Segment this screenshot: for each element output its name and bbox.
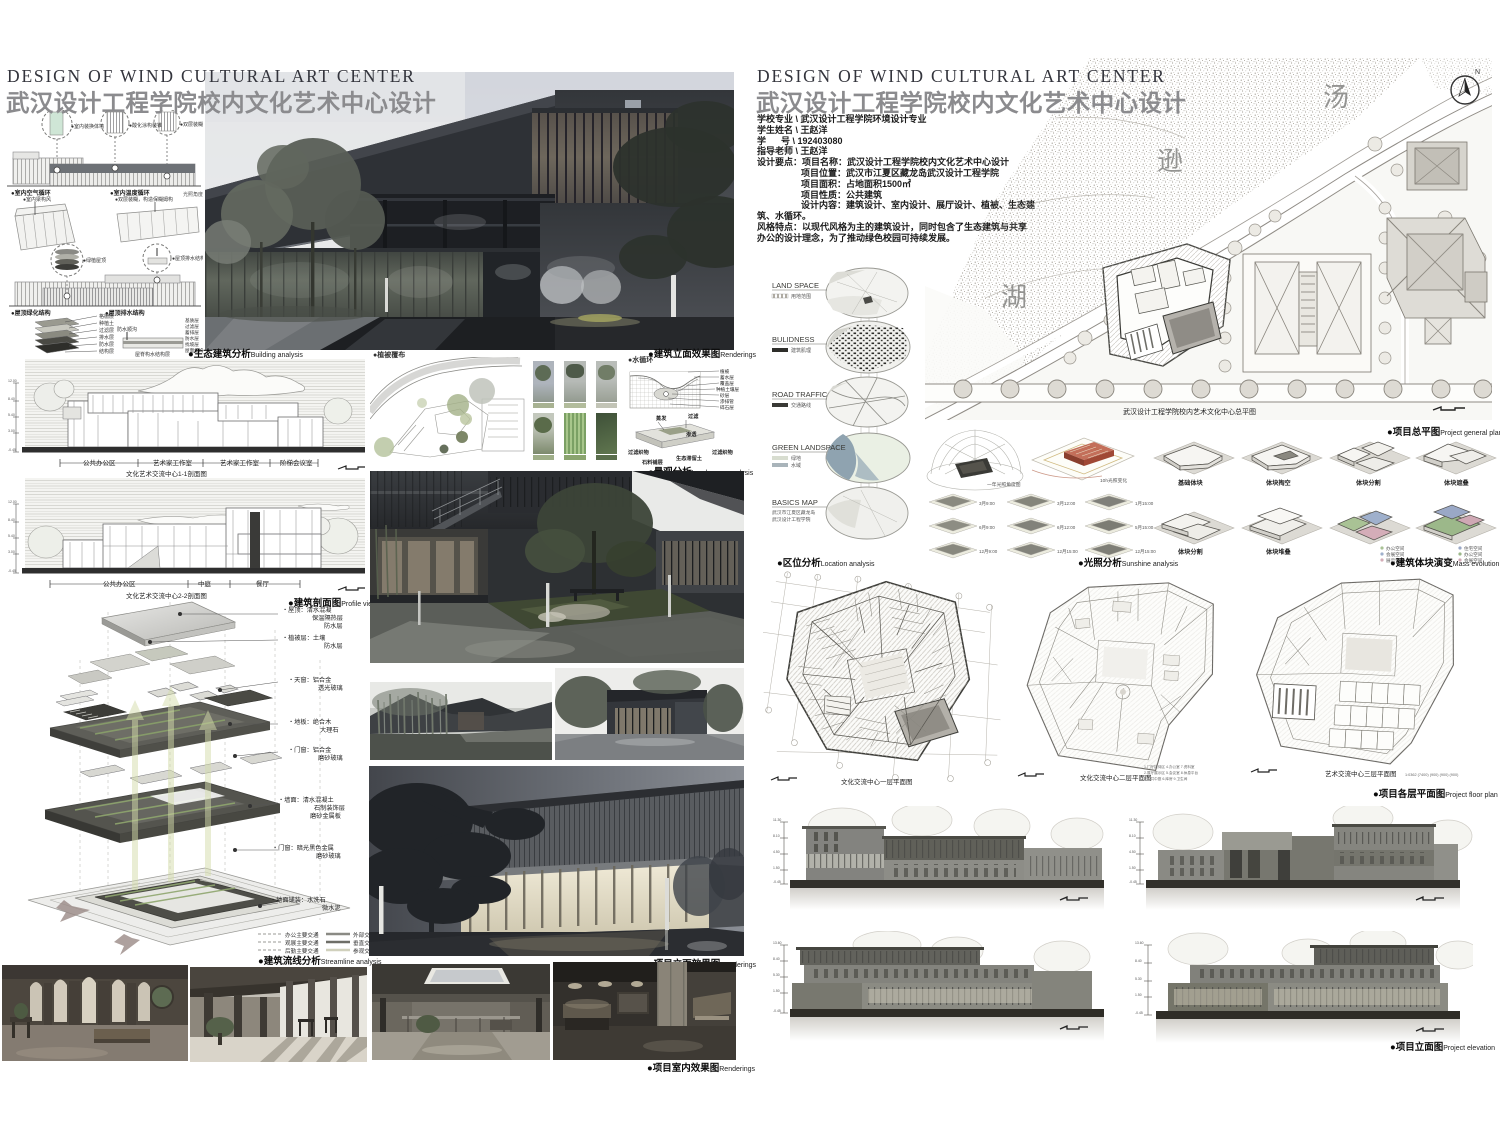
svg-text:N: N xyxy=(1475,69,1480,76)
svg-text:蓄水层: 蓄水层 xyxy=(720,374,734,381)
svg-text:大理石: 大理石 xyxy=(320,726,339,734)
svg-text:●酸化涂构装锥: ●酸化涂构装锥 xyxy=(129,122,162,129)
svg-text:磨砂金属板: 磨砂金属板 xyxy=(310,812,341,820)
svg-text:中庭: 中庭 xyxy=(198,579,212,588)
svg-text:文化交流中心二层平面图: 文化交流中心二层平面图 xyxy=(1080,773,1152,782)
svg-text:-0.45: -0.45 xyxy=(1135,1011,1143,1015)
svg-text:渗透: 渗透 xyxy=(686,430,697,438)
svg-text:体块掏空: 体块掏空 xyxy=(1266,479,1291,487)
svg-text:保温隔热层: 保温隔热层 xyxy=(312,614,343,622)
svg-text:●屋顶绿化结构: ●屋顶绿化结构 xyxy=(11,309,51,317)
svg-text:过滤织物: 过滤织物 xyxy=(628,448,650,456)
svg-text:8.40: 8.40 xyxy=(8,518,15,522)
svg-text:砂层: 砂层 xyxy=(720,392,730,399)
svg-text:阶梯会议室: 阶梯会议室 xyxy=(280,458,313,467)
svg-text:11.30: 11.30 xyxy=(773,818,781,822)
svg-text:12.00: 12.00 xyxy=(8,379,17,383)
svg-text:3.公共中庭 6.库房 9.卫生间: 3.公共中庭 6.库房 9.卫生间 xyxy=(1144,776,1188,781)
svg-text:6月9:00: 6月9:00 xyxy=(979,525,995,531)
svg-text:-0.45: -0.45 xyxy=(1129,880,1137,884)
svg-text:武汉设计工程学院: 武汉设计工程学院 xyxy=(772,516,811,523)
svg-text:6月12:00: 6月12:00 xyxy=(1057,525,1076,531)
svg-text:体块遮叠: 体块遮叠 xyxy=(1444,479,1469,487)
svg-text:观展主要交通: 观展主要交通 xyxy=(285,939,319,947)
svg-text:・墙面：清水混凝土: ・墙面：清水混凝土 xyxy=(278,796,334,804)
svg-text:屋脊构水结构层: 屋脊构水结构层 xyxy=(135,351,170,358)
svg-text:・屋顶：清水混凝: ・屋顶：清水混凝 xyxy=(282,606,332,614)
svg-text:12月9:00: 12月9:00 xyxy=(979,549,998,555)
svg-text:8.40: 8.40 xyxy=(8,397,15,401)
svg-text:艺术家工作室: 艺术家工作室 xyxy=(153,458,193,467)
svg-text:ROAD TRAFFIC: ROAD TRAFFIC xyxy=(772,390,828,399)
svg-text:防水顺沟: 防水顺沟 xyxy=(117,326,137,333)
svg-text:5.30: 5.30 xyxy=(1135,977,1142,981)
svg-text:武汉设计工程学院校内艺术文化中心总平图: 武汉设计工程学院校内艺术文化中心总平图 xyxy=(1123,407,1256,416)
svg-text:艺术交流中心三层平面图: 艺术交流中心三层平面图 xyxy=(1325,769,1397,778)
svg-text:透光玻璃: 透光玻璃 xyxy=(318,684,343,692)
svg-text:1.50: 1.50 xyxy=(773,866,780,870)
svg-text:过滤: 过滤 xyxy=(688,412,699,420)
svg-text:过滤层: 过滤层 xyxy=(99,327,114,334)
svg-text:8.10: 8.10 xyxy=(773,834,780,838)
svg-text:●绿植屋顶: ●绿植屋顶 xyxy=(83,257,106,264)
svg-text:文化交流中心一层平面图: 文化交流中心一层平面图 xyxy=(841,777,913,786)
svg-text:BULIDNESS: BULIDNESS xyxy=(772,335,815,344)
svg-text:●室内装换体墙: ●室内装换体墙 xyxy=(71,123,104,130)
svg-text:文化艺术交流中心2-2剖面图: 文化艺术交流中心2-2剖面图 xyxy=(126,591,207,600)
svg-text:●室内梁构风: ●室内梁构风 xyxy=(23,196,51,203)
svg-text:体块分割: 体块分割 xyxy=(1356,479,1381,487)
svg-text:磨砂玻璃: 磨砂玻璃 xyxy=(318,754,343,762)
svg-text:蒸发: 蒸发 xyxy=(655,414,667,422)
svg-text:5.30: 5.30 xyxy=(773,973,780,977)
svg-text:・植被层：土壤: ・植被层：土壤 xyxy=(282,634,325,642)
svg-text:过滤层: 过滤层 xyxy=(185,323,199,330)
svg-text:建筑肌理: 建筑肌理 xyxy=(791,347,811,354)
svg-text:●室内空气循环: ●室内空气循环 xyxy=(11,189,51,197)
svg-text:●双层装糊: ●双层装糊 xyxy=(180,121,203,128)
svg-text:-0.45: -0.45 xyxy=(8,448,16,452)
svg-text:体块分割: 体块分割 xyxy=(1178,548,1203,556)
svg-text:●屋顶排水结构: ●屋顶排水结构 xyxy=(172,255,203,262)
svg-text:交通路线: 交通路线 xyxy=(791,402,811,409)
svg-text:・门窗：暗光黑色金属: ・门窗：暗光黑色金属 xyxy=(272,844,334,852)
svg-text:湖: 湖 xyxy=(1001,282,1027,312)
svg-text:10h光照变化: 10h光照变化 xyxy=(1100,477,1127,484)
svg-text:微水泥: 微水泥 xyxy=(322,904,341,912)
svg-text:防水层: 防水层 xyxy=(324,642,343,650)
svg-text:碎石层: 碎石层 xyxy=(720,404,734,411)
svg-text:餐厅: 餐厅 xyxy=(256,579,270,588)
svg-text:武汉市江夏区藏龙岛: 武汉市江夏区藏龙岛 xyxy=(772,509,815,516)
svg-text:8.40: 8.40 xyxy=(773,957,780,961)
svg-text:3.00: 3.00 xyxy=(8,429,15,433)
svg-text:公共办公区: 公共办公区 xyxy=(83,458,116,467)
svg-text:磨砂玻璃: 磨砂玻璃 xyxy=(316,852,341,860)
svg-text:排水层: 排水层 xyxy=(99,334,114,341)
svg-text:文化艺术交流中心1-1剖面图: 文化艺术交流中心1-1剖面图 xyxy=(126,469,207,478)
svg-text:13.60: 13.60 xyxy=(1135,941,1144,945)
svg-text:渗排管: 渗排管 xyxy=(720,398,734,405)
svg-text:过滤织物: 过滤织物 xyxy=(712,448,734,456)
svg-text:格栅层: 格栅层 xyxy=(99,313,114,320)
svg-text:1:0362 (7400) (900) (900) (900: 1:0362 (7400) (900) (900) (900) xyxy=(1405,773,1459,777)
svg-text:垂直交通: 垂直交通 xyxy=(353,939,370,947)
svg-text:水域: 水域 xyxy=(791,462,801,469)
svg-text:体块堆叠: 体块堆叠 xyxy=(1266,548,1291,556)
svg-text:光照角度: 光照角度 xyxy=(183,191,203,198)
svg-text:办公空间: 办公空间 xyxy=(1386,545,1405,552)
svg-text:・天窗：铝合金: ・天窗：铝合金 xyxy=(288,676,332,684)
svg-text:逊: 逊 xyxy=(1157,146,1183,176)
svg-text:5.40: 5.40 xyxy=(8,413,15,417)
svg-text:3.00: 3.00 xyxy=(8,550,15,554)
svg-text:4.50: 4.50 xyxy=(1129,850,1136,854)
svg-text:防水层: 防水层 xyxy=(324,622,343,630)
svg-text:种植土: 种植土 xyxy=(99,320,114,327)
svg-text:LAND SPACE: LAND SPACE xyxy=(772,281,819,290)
svg-text:・地面铺装：水洗石: ・地面铺装：水洗石 xyxy=(270,896,326,904)
svg-text:办公主要交通: 办公主要交通 xyxy=(285,931,319,939)
svg-text:・地板：绝合木: ・地板：绝合木 xyxy=(288,718,331,726)
svg-text:3月12:00: 3月12:00 xyxy=(1057,501,1076,507)
svg-text:一年光照角度图: 一年光照角度图 xyxy=(987,481,1021,488)
svg-text:13.60: 13.60 xyxy=(773,941,782,945)
svg-text:8.40: 8.40 xyxy=(1135,959,1142,963)
svg-text:结构层: 结构层 xyxy=(99,348,114,355)
svg-text:种植土壤层: 种植土壤层 xyxy=(716,386,739,393)
svg-text:用地范围: 用地范围 xyxy=(791,293,811,300)
svg-text:基础体块: 基础体块 xyxy=(1177,479,1204,487)
svg-text:汤: 汤 xyxy=(1323,82,1349,112)
svg-text:-0.45: -0.45 xyxy=(773,880,781,884)
svg-text:3月9:00: 3月9:00 xyxy=(979,501,995,507)
svg-text:石制装饰层: 石制装饰层 xyxy=(314,804,345,812)
svg-text:GREEN LANDSPACE: GREEN LANDSPACE xyxy=(772,443,846,452)
svg-text:5.40: 5.40 xyxy=(8,534,15,538)
svg-text:1.50: 1.50 xyxy=(1129,866,1136,870)
svg-text:BASICS MAP: BASICS MAP xyxy=(772,498,818,507)
svg-text:2.展厅展示区 5.会议室 8.休息平台: 2.展厅展示区 5.会议室 8.休息平台 xyxy=(1144,770,1199,775)
svg-text:1.门厅接待区 4.办公室 7.资料室: 1.门厅接待区 4.办公室 7.资料室 xyxy=(1144,764,1195,769)
svg-text:住宅空间: 住宅空间 xyxy=(1464,545,1483,552)
svg-text:-0.45: -0.45 xyxy=(773,1009,781,1013)
svg-text:蓄排层: 蓄排层 xyxy=(185,329,199,336)
svg-text:外部交通: 外部交通 xyxy=(353,931,370,939)
svg-text:4.50: 4.50 xyxy=(773,850,780,854)
svg-text:●室内温度循环: ●室内温度循环 xyxy=(110,189,150,197)
svg-text:生态滞留土: 生态滞留土 xyxy=(676,454,703,462)
svg-text:11.30: 11.30 xyxy=(1129,818,1137,822)
svg-text:基质层: 基质层 xyxy=(185,317,199,324)
svg-text:公共办公区: 公共办公区 xyxy=(103,579,136,588)
svg-text:12.00: 12.00 xyxy=(8,500,17,504)
svg-text:1.50: 1.50 xyxy=(1135,993,1142,997)
svg-text:植被: 植被 xyxy=(720,368,730,375)
svg-text:覆盖层: 覆盖层 xyxy=(720,380,734,387)
svg-text:1.50: 1.50 xyxy=(773,989,780,993)
svg-text:防水层: 防水层 xyxy=(99,341,114,348)
svg-text:艺术家工作室: 艺术家工作室 xyxy=(220,458,260,467)
svg-text:-0.45: -0.45 xyxy=(8,569,16,573)
svg-text:防水层: 防水层 xyxy=(185,335,199,342)
svg-text:12月15:00: 12月15:00 xyxy=(1057,549,1078,555)
svg-text:●双层装糊，构造保糊姆构: ●双层装糊，构造保糊姆构 xyxy=(115,196,173,203)
svg-text:・门窗：铝合金: ・门窗：铝合金 xyxy=(288,746,332,754)
svg-text:绿地: 绿地 xyxy=(791,455,801,462)
svg-text:8.10: 8.10 xyxy=(1129,834,1136,838)
